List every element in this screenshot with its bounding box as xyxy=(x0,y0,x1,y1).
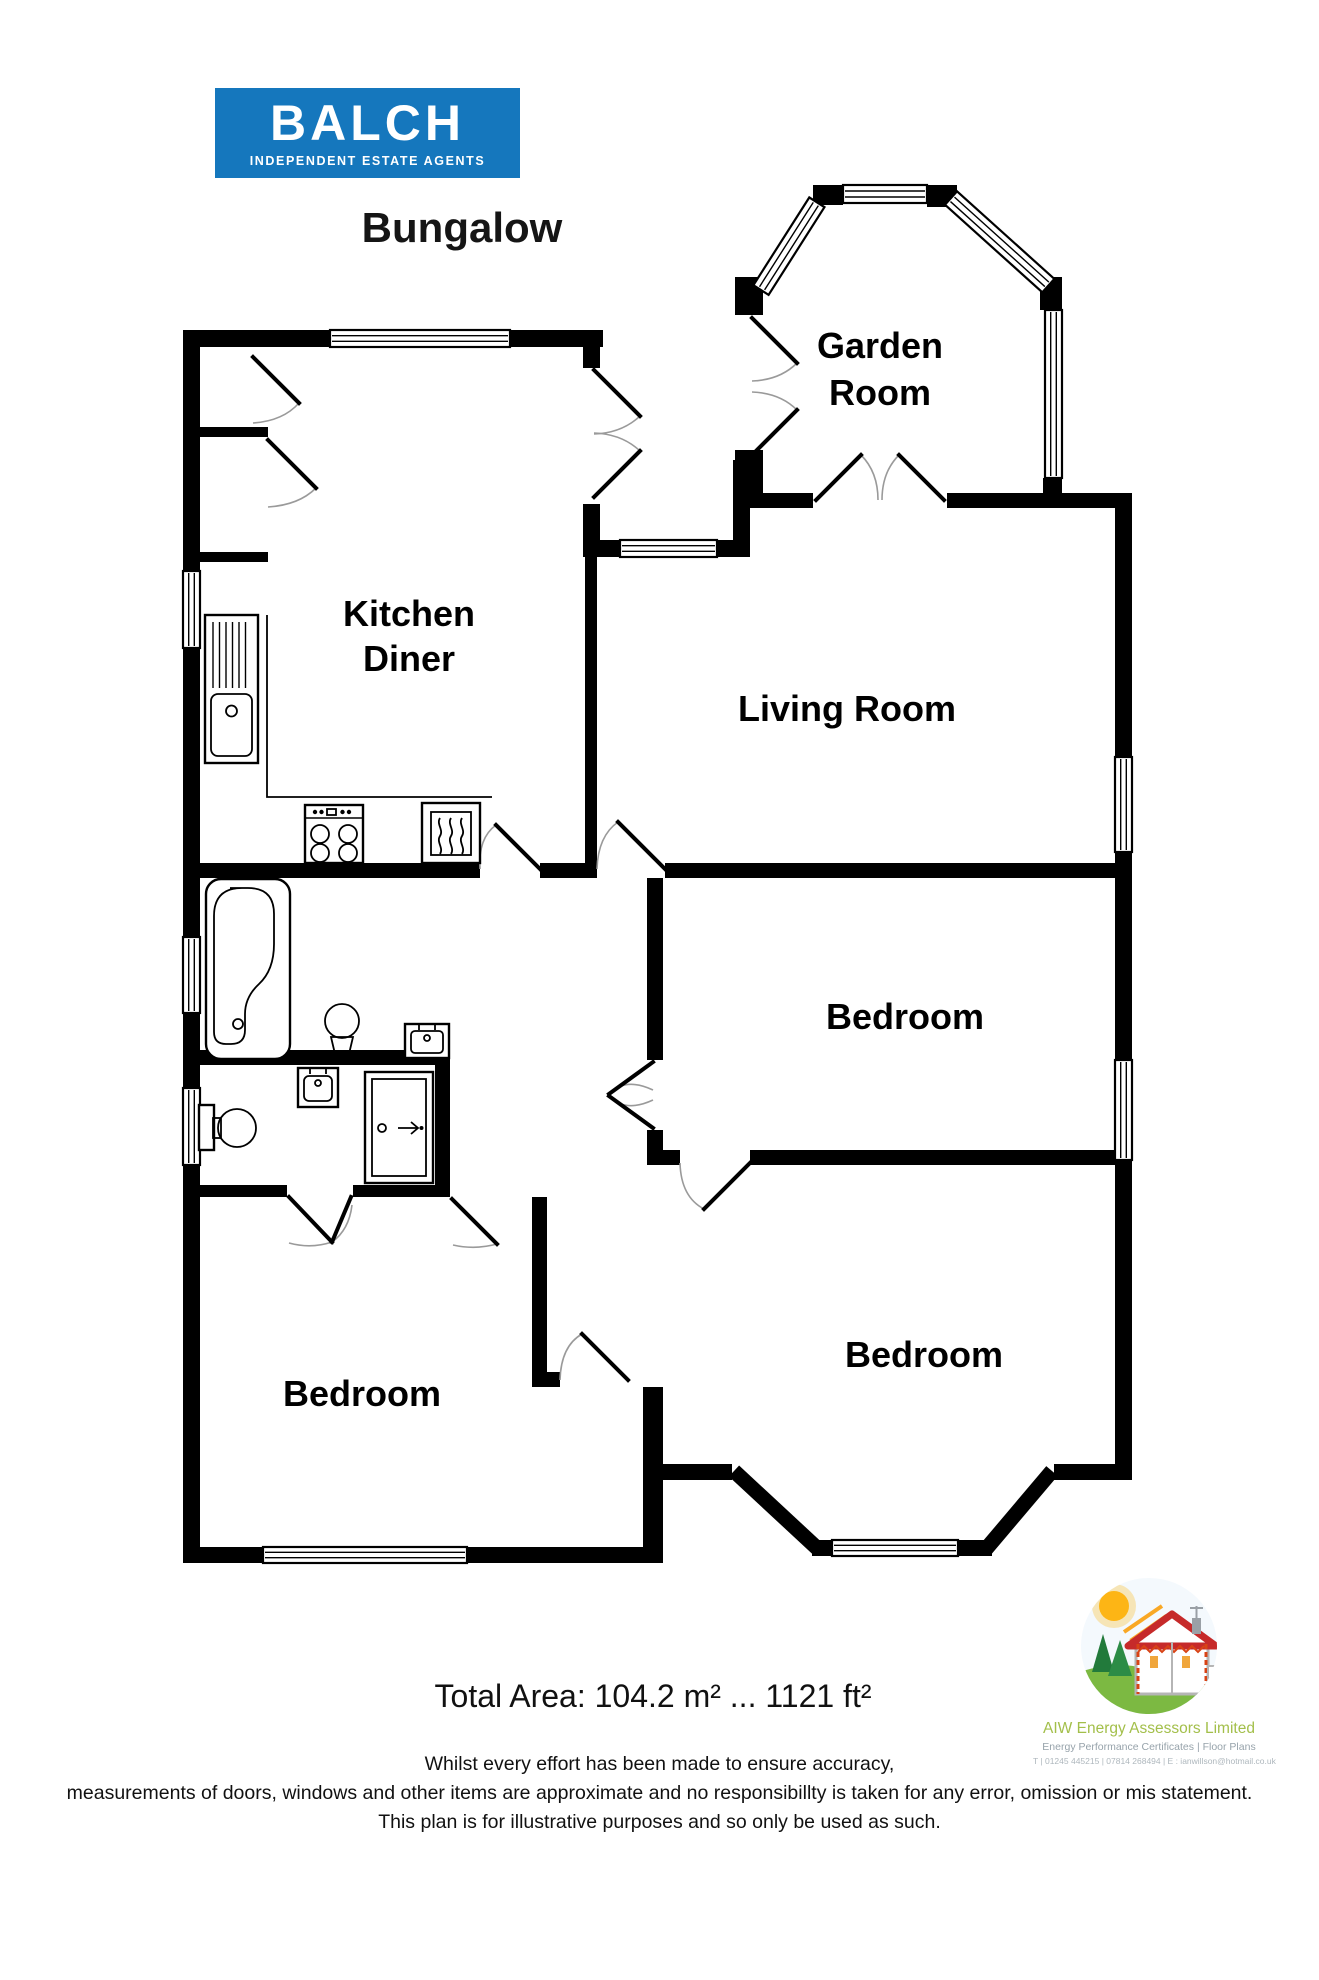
door xyxy=(882,455,944,500)
door xyxy=(597,822,665,869)
toilet-icon xyxy=(199,1105,256,1150)
door xyxy=(594,433,640,497)
window xyxy=(330,330,510,347)
assessor-logo-icon xyxy=(1064,1576,1234,1718)
door xyxy=(253,357,299,423)
disclaimer-line: measurements of doors, windows and other… xyxy=(0,1779,1319,1808)
assessor-contact: T | 01245 445215 | 07814 268494 | E : ia… xyxy=(1033,1756,1265,1766)
hob-icon xyxy=(305,805,363,863)
room-label-garden-room: Room xyxy=(829,372,931,413)
window xyxy=(620,540,717,557)
total-area: Total Area: 104.2 m² ... 1121 ft² xyxy=(153,1678,1153,1715)
room-label-bedroom: Bedroom xyxy=(826,996,984,1037)
room-label-kitchen-diner: Kitchen xyxy=(343,593,475,634)
room-label-living-room: Living Room xyxy=(738,688,956,729)
door xyxy=(480,825,540,869)
window xyxy=(843,185,927,203)
bath-icon xyxy=(206,879,290,1059)
room-label-garden-room: Garden xyxy=(817,325,943,366)
door xyxy=(609,1062,653,1094)
disclaimer-line: This plan is for illustrative purposes a… xyxy=(0,1808,1319,1837)
assessor-services: Energy Performance Certificates | Floor … xyxy=(1033,1741,1265,1753)
door xyxy=(680,1163,750,1209)
window xyxy=(183,1088,200,1165)
room-label-bedroom: Bedroom xyxy=(845,1334,1003,1375)
door xyxy=(268,440,316,507)
window xyxy=(183,937,200,1013)
basin-icon xyxy=(405,1024,449,1058)
toilet-icon xyxy=(325,1004,359,1054)
window xyxy=(183,571,200,648)
kitchen-sink-icon xyxy=(205,615,258,763)
door xyxy=(609,1096,653,1128)
door xyxy=(332,1197,352,1242)
heater-icon xyxy=(422,803,480,863)
shower-icon xyxy=(365,1072,433,1183)
door xyxy=(560,1334,628,1380)
window xyxy=(1045,310,1062,478)
assessor-logo-block: AIW Energy Assessors Limited Energy Perf… xyxy=(1033,1576,1265,1766)
door xyxy=(594,370,640,434)
assessor-name: AIW Energy Assessors Limited xyxy=(1033,1720,1265,1738)
room-label-kitchen-diner: Diner xyxy=(363,638,455,679)
window xyxy=(753,197,824,294)
room-label-bedroom: Bedroom xyxy=(283,1373,441,1414)
door xyxy=(289,1197,332,1246)
door xyxy=(452,1199,497,1247)
floorplan-page: BALCH INDEPENDENT ESTATE AGENTS Bungalow xyxy=(0,0,1319,1980)
window xyxy=(832,1540,958,1556)
door xyxy=(752,392,797,455)
door xyxy=(752,318,797,381)
window xyxy=(263,1547,467,1563)
basin-icon xyxy=(298,1068,338,1107)
window xyxy=(1115,757,1132,852)
door xyxy=(816,455,878,500)
window xyxy=(1115,1060,1132,1160)
window xyxy=(945,191,1054,292)
